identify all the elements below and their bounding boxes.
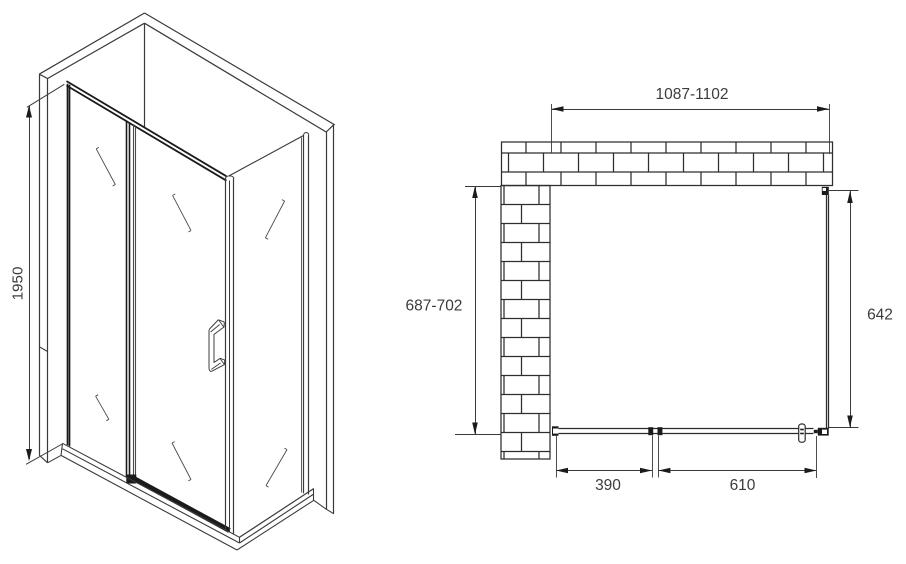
svg-text:642: 642 <box>867 307 893 324</box>
svg-text:1087-1102: 1087-1102 <box>656 86 729 103</box>
svg-text:390: 390 <box>595 477 621 494</box>
svg-text:1950: 1950 <box>10 267 27 301</box>
svg-text:610: 610 <box>730 477 756 494</box>
svg-text:687-702: 687-702 <box>406 298 463 315</box>
